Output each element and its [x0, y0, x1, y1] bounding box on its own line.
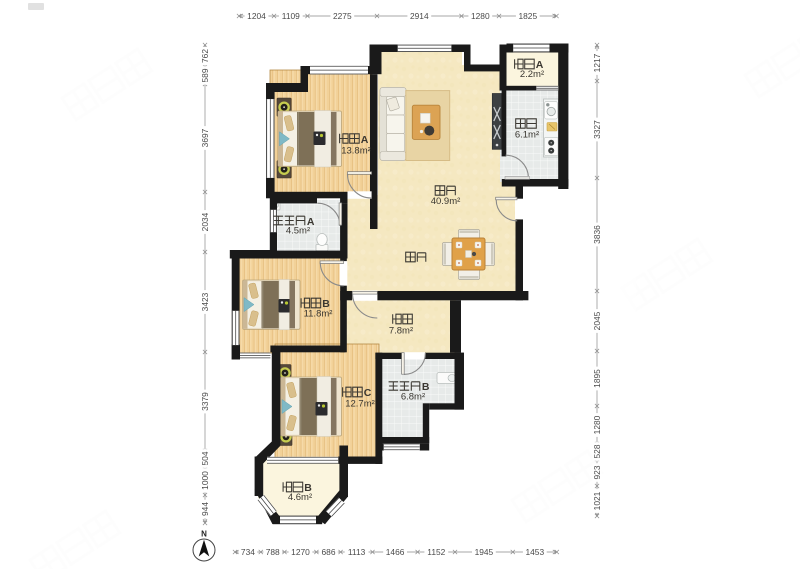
svg-text:6.8m²: 6.8m²: [401, 391, 425, 402]
svg-text:3697: 3697: [200, 128, 210, 147]
svg-text:1280: 1280: [592, 415, 602, 434]
svg-text:1021: 1021: [592, 491, 602, 510]
svg-text:4.6m²: 4.6m²: [288, 492, 312, 503]
svg-text:1109: 1109: [282, 11, 300, 21]
svg-text:944: 944: [200, 502, 210, 516]
svg-text:3423: 3423: [200, 292, 210, 311]
svg-text:504: 504: [200, 451, 210, 465]
svg-text:788: 788: [266, 547, 280, 557]
svg-text:2045: 2045: [592, 311, 602, 330]
svg-text:4.5m²: 4.5m²: [286, 225, 310, 236]
svg-text:N: N: [201, 530, 207, 539]
svg-text:3379: 3379: [200, 392, 210, 411]
svg-text:1152: 1152: [427, 547, 445, 557]
svg-text:1825: 1825: [518, 11, 537, 21]
svg-text:923: 923: [592, 465, 602, 479]
svg-text:528: 528: [592, 444, 602, 458]
svg-text:589: 589: [200, 68, 210, 82]
svg-text:A: A: [361, 134, 369, 146]
svg-text:1945: 1945: [475, 547, 494, 557]
svg-text:762: 762: [200, 49, 210, 63]
svg-text:1204: 1204: [247, 11, 266, 21]
svg-text:1217: 1217: [592, 53, 602, 72]
svg-text:1280: 1280: [471, 11, 490, 21]
svg-text:2275: 2275: [333, 11, 352, 21]
svg-text:3327: 3327: [592, 120, 602, 139]
svg-text:6.1m²: 6.1m²: [515, 129, 539, 140]
svg-text:40.9m²: 40.9m²: [431, 196, 461, 207]
svg-text:1000: 1000: [200, 471, 210, 490]
svg-text:1270: 1270: [291, 547, 310, 557]
svg-text:1453: 1453: [525, 547, 544, 557]
svg-text:3836: 3836: [592, 225, 602, 244]
svg-text:13.8m²: 13.8m²: [341, 146, 371, 157]
svg-text:734: 734: [241, 547, 255, 557]
svg-text:12.7m²: 12.7m²: [345, 398, 375, 409]
svg-text:7.8m²: 7.8m²: [389, 326, 413, 337]
svg-text:1113: 1113: [348, 547, 366, 557]
svg-text:2914: 2914: [410, 11, 429, 21]
svg-text:686: 686: [322, 547, 336, 557]
svg-text:2034: 2034: [200, 212, 210, 231]
svg-text:11.8m²: 11.8m²: [304, 309, 333, 320]
svg-text:2.2m²: 2.2m²: [520, 69, 544, 80]
svg-text:1895: 1895: [592, 369, 602, 388]
svg-text:1466: 1466: [386, 547, 405, 557]
